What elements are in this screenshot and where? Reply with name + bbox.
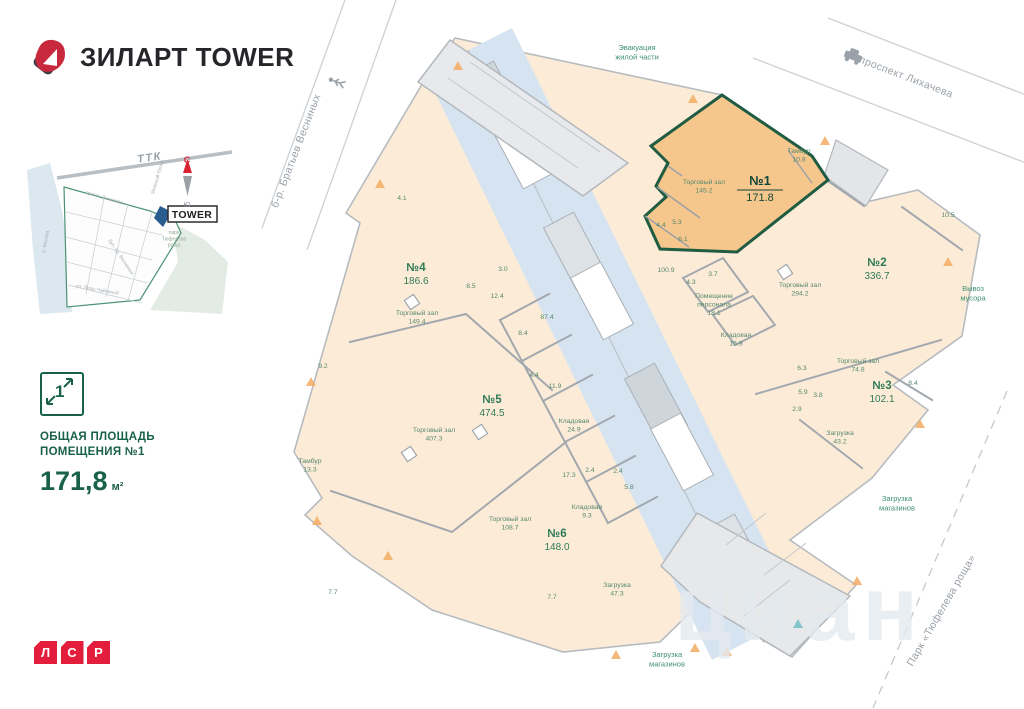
- total-area-value: 171,8м²: [40, 466, 155, 497]
- room-label: 10.5: [941, 212, 954, 219]
- lsr-cube: Р: [87, 641, 110, 664]
- room-label: 2.9: [792, 406, 802, 413]
- lsr-cube: С: [61, 641, 84, 664]
- street-label: проспект Лихачева: [857, 54, 954, 101]
- room-label: 8.5: [466, 283, 476, 290]
- annotation: Вывозмусора: [960, 284, 986, 302]
- watermark: циан: [674, 558, 926, 660]
- room-label: 4.4: [529, 372, 539, 379]
- room-label: 7.7: [328, 589, 338, 596]
- unit-number: №3: [872, 380, 891, 392]
- unit-area: 336.7: [864, 271, 889, 282]
- unit-number: №5: [482, 394, 502, 406]
- room-label: 4.3: [686, 279, 696, 286]
- room-label: 4.4: [656, 222, 666, 229]
- lsr-developer-logo: Л С Р: [34, 641, 110, 664]
- brand-logo: ЗИЛАРТ TOWER: [28, 36, 294, 78]
- expand-area-icon: 1: [40, 372, 84, 416]
- area-info-title: ОБЩАЯ ПЛОЩАДЬ ПОМЕЩЕНИЯ №1: [40, 430, 155, 460]
- room-label: 87.4: [540, 314, 553, 321]
- annotation: Эвакуацияжилой части: [615, 43, 659, 61]
- area-title-line2: ПОМЕЩЕНИЯ №1: [40, 445, 155, 460]
- lsr-cube: Л: [34, 641, 57, 664]
- unit-number: №2: [867, 257, 886, 269]
- room-label: 2.4: [585, 467, 595, 474]
- page: ТТКСЮTOWERр. МосквапаркТюфелеварощапросп…: [0, 0, 1024, 709]
- area-number: 171,8: [40, 466, 108, 496]
- map-tower-label: TOWER: [172, 209, 213, 221]
- room-label: 3.7: [708, 271, 718, 278]
- room-label: 9.2: [318, 363, 328, 370]
- unit1-number: №1: [749, 173, 771, 188]
- room-label: 12.4: [490, 293, 503, 300]
- unit-area: 474.5: [479, 408, 504, 419]
- compass-south: Ю: [183, 202, 190, 209]
- room-label: 8.4: [518, 330, 528, 337]
- unit-area: 148.0: [544, 542, 569, 553]
- room-label: 3.8: [813, 392, 823, 399]
- area-info-block: 1 ОБЩАЯ ПЛОЩАДЬ ПОМЕЩЕНИЯ №1 171,8м²: [40, 372, 155, 497]
- street-label: б-р. Братьев Весниных: [269, 92, 324, 209]
- room-label: 11.9: [549, 383, 562, 390]
- unit-area: 186.6: [403, 276, 428, 287]
- minimap: [27, 152, 232, 314]
- room-label: 7.7: [547, 594, 557, 601]
- floor-plan-canvas: ТТКСЮTOWERр. МосквапаркТюфелеварощапросп…: [0, 0, 1024, 709]
- room-label: 2.4: [613, 468, 623, 475]
- room-label: 8.4: [908, 380, 918, 387]
- compass-north: С: [184, 155, 191, 165]
- unit-number: №4: [406, 262, 426, 274]
- area-unit: м²: [112, 481, 124, 493]
- room-label: 5.8: [624, 484, 634, 491]
- unit-number: №6: [547, 528, 566, 540]
- room-label: 4.1: [397, 195, 407, 202]
- brand-logo-icon: [28, 36, 70, 78]
- compass-south-arrow: [183, 176, 192, 196]
- room-label: 17.3: [562, 472, 575, 479]
- unit-number-in-icon: 1: [55, 382, 64, 402]
- area-title-line1: ОБЩАЯ ПЛОЩАДЬ: [40, 430, 155, 445]
- room-label: 5.9: [798, 389, 808, 396]
- pedestrian-icon: [328, 76, 346, 89]
- room-label: 6.3: [797, 365, 807, 372]
- annotation: Загрузкамагазинов: [879, 494, 915, 512]
- room-label: 6.1: [678, 236, 688, 243]
- room-label: 100.9: [657, 267, 674, 274]
- brand-logo-text: ЗИЛАРТ TOWER: [80, 42, 294, 73]
- unit-area: 102.1: [869, 394, 894, 405]
- room-label: 3.0: [498, 266, 508, 273]
- unit1-area: 171.8: [746, 192, 774, 204]
- room-label: 5.3: [672, 219, 682, 226]
